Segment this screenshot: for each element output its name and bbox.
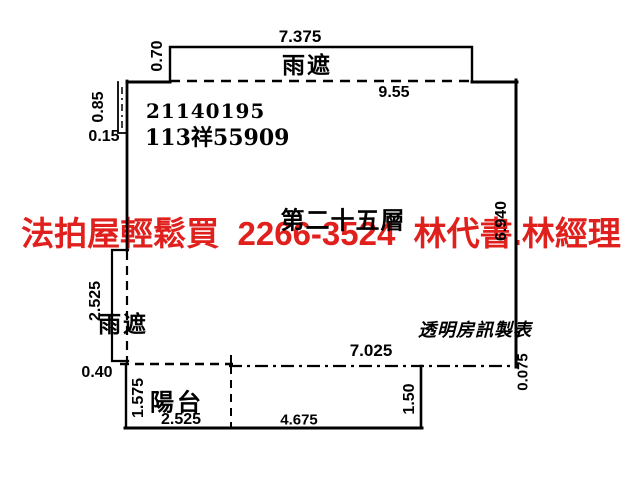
canopy-top-label: 雨遮 xyxy=(282,46,332,80)
dim-balcony-left-width: 2.525 xyxy=(161,411,201,429)
dim-notch-width: 0.15 xyxy=(88,128,119,146)
dim-right-edge-offset: 0.075 xyxy=(515,353,532,391)
dim-unit-top-width: 9.55 xyxy=(378,84,409,102)
dim-canopy-top-height: 0.70 xyxy=(149,40,167,71)
floorplan-page: 7.375 雨遮 0.70 9.55 0.85 0.15 21140195 11… xyxy=(0,0,640,480)
canopy-left-label: 雨遮 xyxy=(98,305,148,339)
dim-unit-bottom-width: 7.025 xyxy=(350,341,393,361)
dim-balcony-mid-width: 4.675 xyxy=(280,412,318,429)
case-number-line2: 113祥55909 xyxy=(145,120,289,152)
maker-credit: 透明房訊製表 xyxy=(418,316,532,342)
watermark-text: 法拍屋輕鬆買 2266-3524 林代書.林經理 xyxy=(21,207,621,255)
dim-balcony-right-height: 1.50 xyxy=(401,383,419,414)
dim-notch-height: 0.85 xyxy=(90,91,108,122)
dim-canopy-left-width: 0.40 xyxy=(81,364,112,382)
dim-canopy-top-width: 7.375 xyxy=(279,27,322,47)
dim-balcony-height: 1.575 xyxy=(130,378,148,418)
